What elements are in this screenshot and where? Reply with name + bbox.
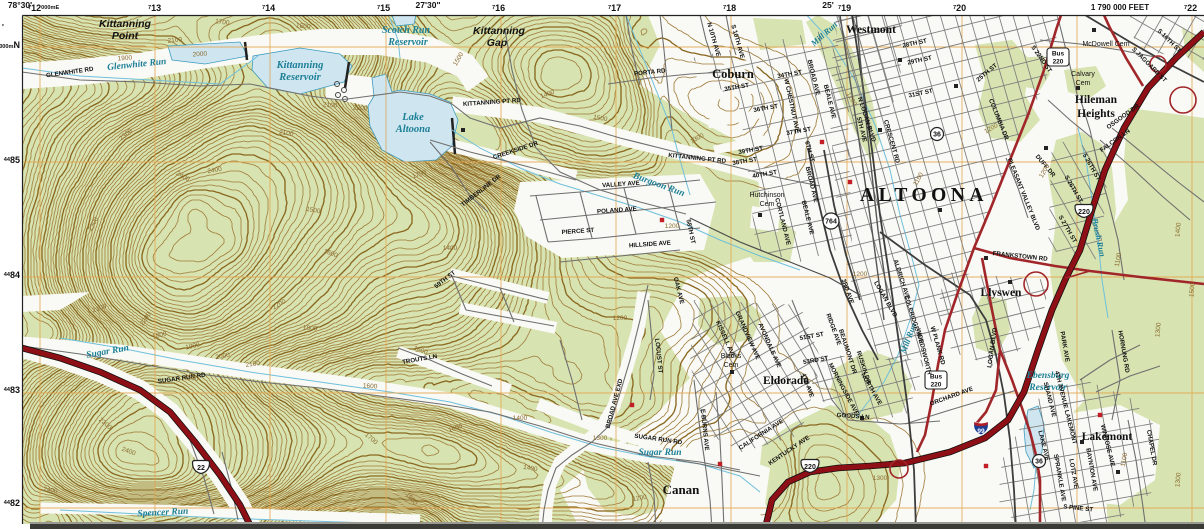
svg-text:2000: 2000 [192, 50, 207, 58]
svg-text:220: 220 [1053, 59, 1064, 66]
svg-text:Llyswen: Llyswen [981, 287, 1023, 299]
svg-text:27'30": 27'30" [416, 0, 441, 10]
svg-text:1800: 1800 [303, 325, 318, 333]
svg-text:Cem: Cem [1076, 80, 1091, 87]
svg-text:Scotch Run: Scotch Run [382, 25, 431, 36]
svg-text:': ' [2, 23, 4, 32]
svg-text:Coburn: Coburn [712, 67, 754, 81]
svg-text:Canan: Canan [663, 482, 701, 497]
svg-text:1900: 1900 [117, 54, 132, 62]
svg-text:1200: 1200 [853, 271, 868, 278]
svg-text:Reservoir: Reservoir [387, 37, 428, 48]
svg-text:99: 99 [977, 428, 985, 435]
svg-text:Lake: Lake [401, 112, 424, 123]
svg-text:220: 220 [804, 464, 816, 471]
svg-text:220: 220 [1078, 209, 1090, 216]
svg-text:36: 36 [1035, 459, 1043, 466]
svg-text:Reservoir: Reservoir [278, 72, 321, 83]
svg-text:Gap: Gap [487, 37, 508, 49]
svg-text:Sugar Run: Sugar Run [638, 448, 681, 458]
svg-text:Point: Point [112, 30, 139, 42]
svg-text:Kittanning: Kittanning [473, 25, 525, 37]
svg-text:1 790 000 FEET: 1 790 000 FEET [1091, 3, 1149, 12]
svg-text:1300: 1300 [1154, 322, 1162, 337]
svg-text:1400: 1400 [513, 415, 528, 422]
svg-text:Calvary: Calvary [1071, 71, 1095, 78]
svg-text:1500: 1500 [1188, 282, 1196, 297]
svg-text:Heights: Heights [1077, 108, 1115, 120]
svg-text:1200: 1200 [665, 223, 680, 230]
svg-text:220: 220 [931, 382, 942, 389]
svg-text:1400: 1400 [443, 245, 458, 252]
svg-text:Kittanning: Kittanning [276, 60, 324, 71]
svg-text:1200: 1200 [613, 315, 628, 322]
svg-text:36: 36 [933, 132, 941, 139]
svg-text:22: 22 [197, 465, 205, 472]
svg-text:2200: 2200 [353, 105, 368, 113]
svg-text:1600: 1600 [363, 383, 378, 391]
svg-text:ALTOONA: ALTOONA [860, 185, 988, 206]
svg-text:1300: 1300 [873, 475, 888, 482]
svg-text:2100: 2100 [323, 102, 338, 110]
svg-text:Cem: Cem [724, 362, 739, 369]
svg-text:1400: 1400 [1174, 222, 1182, 237]
svg-text:Kittanning: Kittanning [99, 18, 151, 30]
svg-text:Bus: Bus [1052, 51, 1065, 58]
svg-text:25': 25' [822, 0, 833, 10]
svg-text:Hileman: Hileman [1075, 94, 1118, 106]
svg-text:Altoona: Altoona [395, 124, 430, 135]
svg-text:Westmont: Westmont [846, 24, 896, 36]
svg-text:Bus: Bus [930, 374, 943, 381]
svg-text:1300: 1300 [1174, 472, 1182, 487]
svg-text:Cem: Cem [760, 201, 775, 208]
svg-text:1300: 1300 [593, 435, 608, 442]
svg-text:McDowell Cem: McDowell Cem [1082, 41, 1129, 48]
svg-text:764: 764 [825, 219, 837, 226]
